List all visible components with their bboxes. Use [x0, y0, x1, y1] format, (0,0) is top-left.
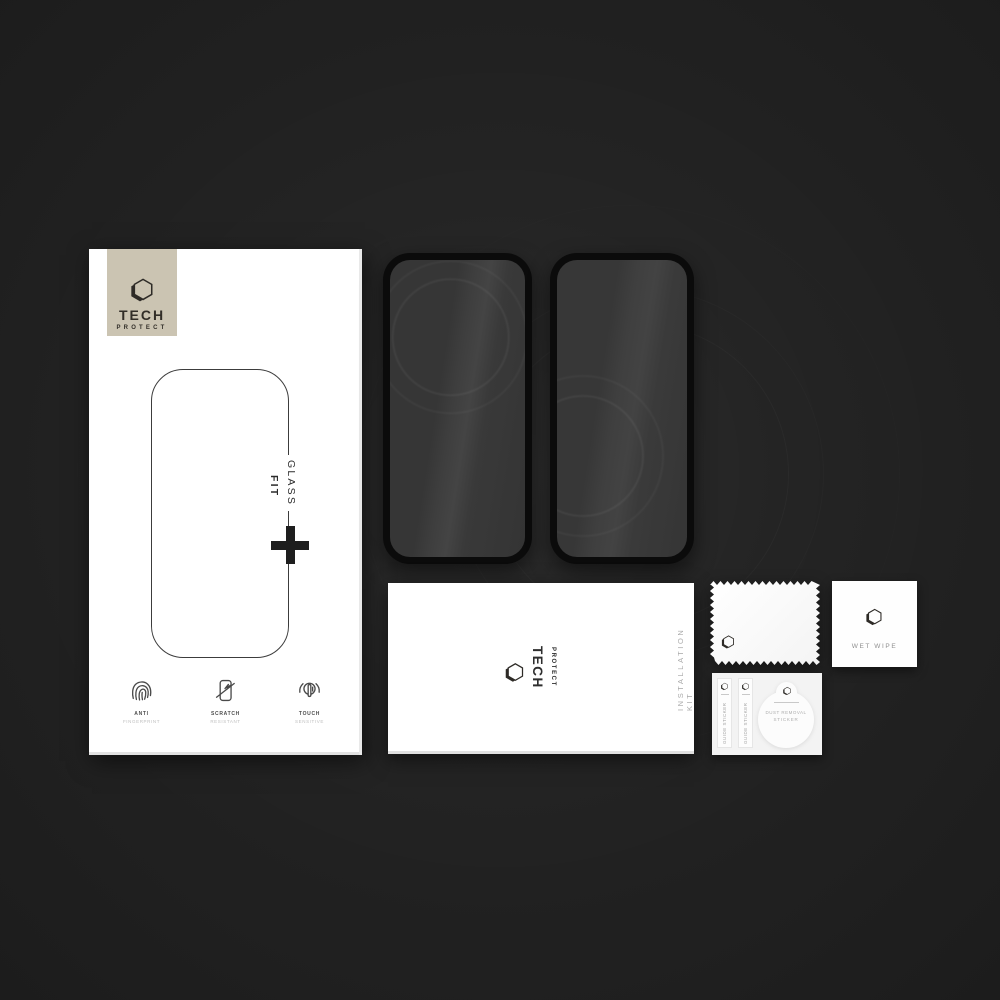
divider	[742, 694, 750, 695]
dust-sticker-label-line1: DUST REMOVAL	[758, 710, 814, 715]
tech-protect-hexagon-icon	[128, 276, 156, 304]
cloth-surface	[710, 581, 820, 665]
installation-kit-label: INSTALLATION KIT	[676, 631, 694, 711]
guide-sticker-strip: GUIDE STICKER	[738, 678, 753, 748]
product-packshot: TECH PROTECT GLASS FIT ANTI FINGERPR	[0, 0, 1000, 1000]
brand-name-primary: TECH	[119, 307, 165, 323]
guide-sticker-label: GUIDE STICKER	[743, 698, 748, 744]
feature-label-line1: TOUCH	[299, 711, 320, 717]
brand-name-primary: TECH	[530, 646, 545, 698]
tech-protect-hexagon-icon	[720, 682, 729, 691]
glass-surface	[390, 260, 525, 557]
feature-touch-sensitive: TOUCH SENSITIVE	[272, 676, 348, 724]
dust-sticker-label-line2: STICKER	[758, 717, 814, 722]
product-title-fit: FIT	[265, 475, 282, 497]
tech-protect-hexagon-icon	[782, 686, 792, 696]
brand-name-secondary: PROTECT	[116, 325, 167, 331]
brand-logo-rotated: TECH PROTECT	[503, 646, 556, 698]
feature-label-line1: SCRATCH	[211, 711, 240, 717]
feature-scratch-resistant: SCRATCH RESISTANT	[188, 676, 264, 724]
tech-protect-hexagon-icon	[864, 607, 884, 627]
divider	[774, 702, 799, 703]
microfiber-cloth	[710, 581, 820, 665]
brand-name-secondary: PROTECT	[550, 647, 556, 697]
glass-surface	[557, 260, 687, 557]
dust-removal-sticker: DUST REMOVAL STICKER	[758, 682, 814, 748]
plus-icon	[271, 526, 309, 564]
product-title-glass: GLASS	[282, 460, 299, 506]
wet-wipe-label: WET WIPE	[832, 643, 917, 650]
touch-icon	[295, 676, 324, 705]
divider	[721, 694, 729, 695]
tech-protect-hexagon-icon	[503, 661, 526, 684]
tempered-glass-2	[550, 253, 694, 564]
installation-kit-box: TECH PROTECT INSTALLATION KIT	[388, 583, 694, 754]
feature-label-line2: RESISTANT	[210, 719, 240, 724]
guide-sticker-label: GUIDE STICKER	[722, 698, 727, 744]
feature-label-line1: ANTI	[134, 711, 148, 717]
feature-anti-fingerprint: ANTI FINGERPRINT	[104, 676, 180, 724]
wet-wipe-packet: WET WIPE	[832, 581, 917, 667]
tech-protect-hexagon-icon	[741, 682, 750, 691]
feature-row: ANTI FINGERPRINT SCRATCH RESISTANT	[89, 676, 362, 724]
guide-sticker-strip: GUIDE STICKER	[717, 678, 732, 748]
brand-logo-square: TECH PROTECT	[107, 249, 177, 336]
feature-label-line2: SENSITIVE	[295, 719, 324, 724]
sticker-sheet: GUIDE STICKER GUIDE STICKER DUST REMOVAL…	[712, 673, 822, 755]
phone-outline-drawing	[151, 369, 289, 658]
tech-protect-hexagon-icon	[720, 634, 736, 650]
product-title: GLASS FIT	[282, 455, 299, 511]
tempered-glass-1	[383, 253, 532, 564]
scratch-icon	[211, 676, 240, 705]
fingerprint-icon	[127, 676, 156, 705]
retail-box: TECH PROTECT GLASS FIT ANTI FINGERPR	[89, 249, 362, 755]
feature-label-line2: FINGERPRINT	[123, 719, 160, 724]
